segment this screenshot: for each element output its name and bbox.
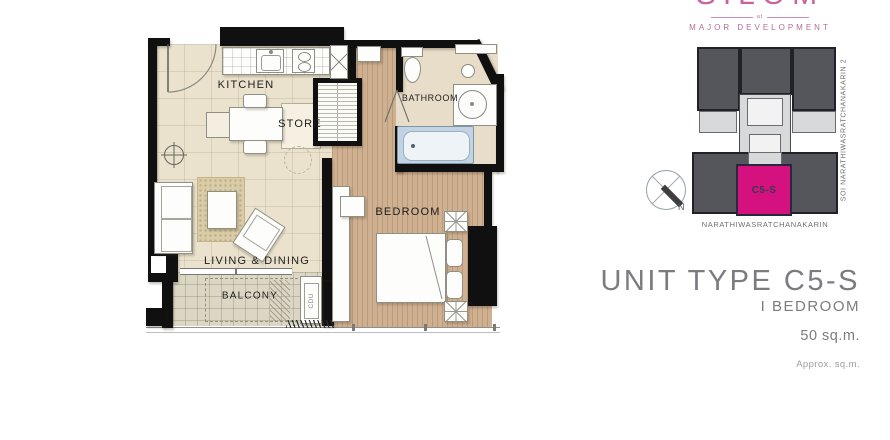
title-block: UNIT TYPE C5-S I BEDROOM 50 sq.m. Approx… xyxy=(600,266,860,370)
brand-wordmark: SILOM xyxy=(678,0,842,10)
room-label-kitchen: KITCHEN xyxy=(218,79,275,91)
street-name-right: SOI NARATHIWASRATCHANAKARIN 2 xyxy=(841,59,848,202)
area-note: Approx. sq.m. xyxy=(600,359,860,370)
bed-sheet-fold xyxy=(426,236,442,299)
building-block-top-right xyxy=(792,47,836,111)
brand-connector: at xyxy=(757,14,764,20)
brochure-page: SILOM at MAJOR DEVELOPMENT xyxy=(0,0,890,440)
unit-highlight-label: C5-S xyxy=(752,185,777,196)
connector-rule-right xyxy=(767,17,809,18)
brand-connector-row: at xyxy=(678,14,842,20)
entry-door-swing xyxy=(168,44,216,92)
room-label-living: LIVING & DINING xyxy=(204,255,310,267)
key-plan: C5-S N NARATHIWASRATCHANAKARIN SOI NARAT… xyxy=(630,30,870,240)
room-label-bathroom: BATHROOM xyxy=(402,93,458,103)
plan-linework xyxy=(140,20,510,340)
core-lobby-upper xyxy=(747,98,783,126)
unit-highlight: C5-S xyxy=(736,164,792,216)
walkway-right xyxy=(792,111,836,133)
building-block-top-mid xyxy=(740,47,792,95)
room-label-store: STORE xyxy=(278,118,322,130)
unit-type-title: UNIT TYPE C5-S xyxy=(600,266,860,296)
bedroom-count: I BEDROOM xyxy=(600,298,860,315)
room-label-balcony: BALCONY xyxy=(222,291,278,302)
building-block-top-left xyxy=(697,47,740,111)
floor-plan: CDU xyxy=(0,0,560,440)
room-label-bedroom: BEDROOM xyxy=(375,206,440,218)
connector-rule-left xyxy=(711,17,753,18)
street-name-bottom: NARATHIWASRATCHANAKARIN xyxy=(690,220,840,229)
unit-area: 50 sq.m. xyxy=(600,328,860,344)
compass-north-label: N xyxy=(678,202,685,212)
walkway-left xyxy=(699,111,737,133)
brand-logo: SILOM at MAJOR DEVELOPMENT xyxy=(678,0,842,32)
developer-name: MAJOR DEVELOPMENT xyxy=(678,23,842,32)
